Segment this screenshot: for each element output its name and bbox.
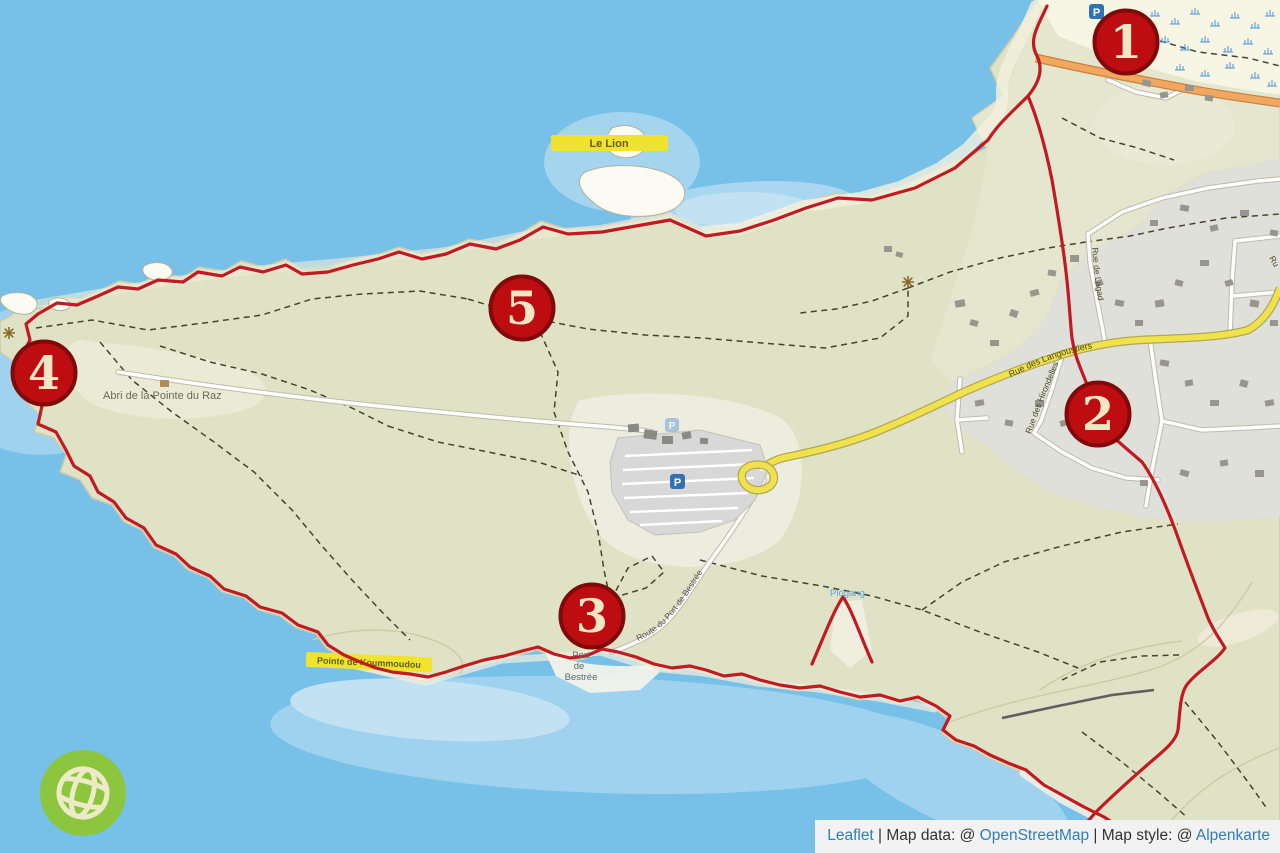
port-bestree-line3: Bestrée bbox=[565, 672, 598, 683]
marker-2[interactable]: 2 bbox=[1067, 383, 1130, 446]
alpenkarte-link[interactable]: Alpenkarte bbox=[1196, 827, 1270, 844]
port-bestree-line2: de bbox=[574, 661, 585, 672]
svg-text:5: 5 bbox=[506, 281, 538, 335]
svg-text:P: P bbox=[1093, 7, 1100, 19]
svg-text:4: 4 bbox=[28, 346, 60, 400]
map-style-prefix: | Map style: @ bbox=[1089, 827, 1196, 844]
map-data-prefix: | Map data: @ bbox=[874, 827, 980, 844]
globe-logo-icon bbox=[40, 750, 126, 836]
openstreetmap-link[interactable]: OpenStreetMap bbox=[980, 827, 1089, 844]
port-bestree-line1: Port bbox=[572, 650, 590, 661]
leaflet-link[interactable]: Leaflet bbox=[827, 827, 874, 844]
marker-5[interactable]: 5 bbox=[491, 277, 554, 340]
cove-label: Plogang bbox=[830, 588, 865, 599]
parking-icon-north: P bbox=[1089, 4, 1104, 19]
marker-1[interactable]: 1 bbox=[1095, 11, 1158, 74]
parking-icon: P bbox=[670, 474, 685, 489]
parking-icon-faint: P bbox=[665, 418, 679, 432]
svg-text:P: P bbox=[669, 421, 676, 432]
svg-text:P: P bbox=[674, 477, 681, 489]
marker-3[interactable]: 3 bbox=[561, 585, 624, 648]
svg-text:2: 2 bbox=[1082, 387, 1114, 441]
le-lion-label: Le Lion bbox=[551, 135, 668, 151]
marker-4[interactable]: 4 bbox=[13, 342, 76, 405]
attribution-bar: Leaflet | Map data: @ OpenStreetMap | Ma… bbox=[815, 820, 1280, 853]
abri-label: Abri de la Pointe du Raz bbox=[103, 390, 222, 402]
le-lion-text: Le Lion bbox=[589, 138, 628, 150]
svg-text:3: 3 bbox=[576, 589, 608, 643]
map-canvas[interactable]: Le Lion Pointe de Koummoudou P P P bbox=[0, 0, 1280, 853]
svg-text:1: 1 bbox=[1110, 15, 1142, 69]
